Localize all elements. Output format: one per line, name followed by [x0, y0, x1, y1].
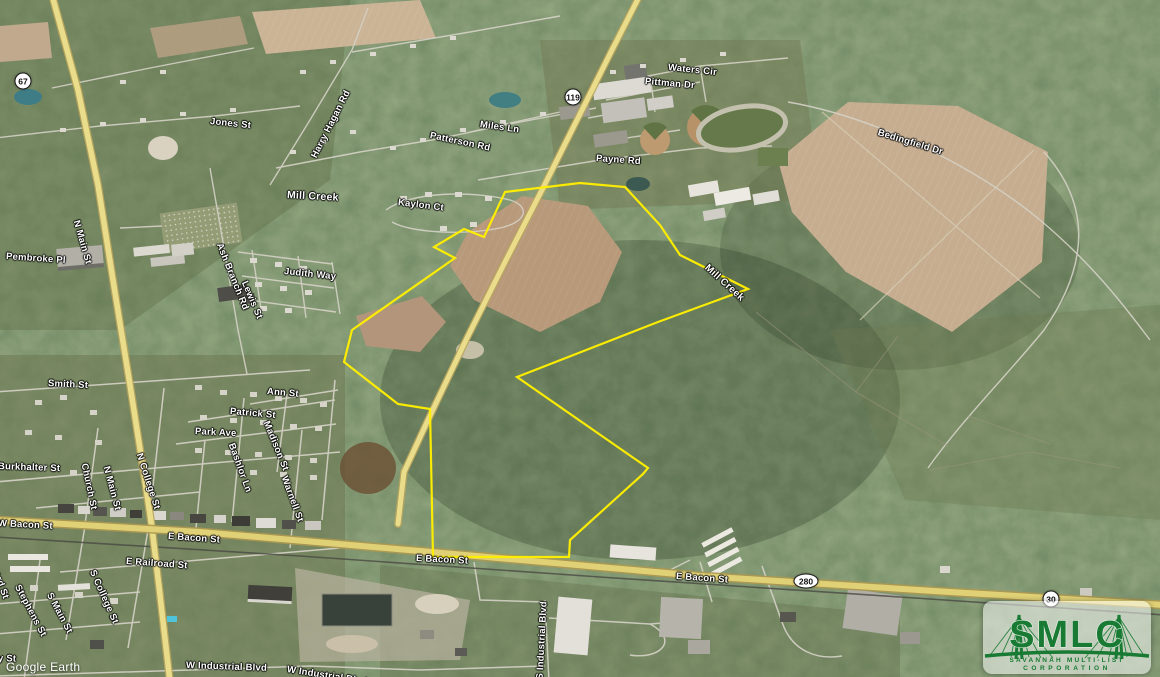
parcel-boundary — [344, 183, 748, 557]
map-viewport[interactable]: Jones StHarry Hagan RdPatterson RdMiles … — [0, 0, 1160, 677]
logo-line2: CORPORATION — [1023, 665, 1111, 672]
street-label: Burkhalter St — [0, 461, 60, 474]
logo-line1: SAVANNAH MULTI-LIST — [1009, 657, 1124, 664]
google-earth-watermark: Google Earth — [6, 660, 80, 674]
logo-acronym: SMLC — [1009, 614, 1125, 656]
bridge-icon: SMLC SAVANNAH MULTI-LIST CORPORATION — [983, 601, 1151, 674]
highway-shield-119: 119 — [565, 89, 582, 106]
highway-shield-280: 280 — [794, 574, 819, 589]
street-label: Park Ave — [195, 426, 237, 439]
street-label: Smith St — [48, 378, 89, 391]
highway-shield-67: 67 — [15, 73, 32, 90]
smlc-logo: SMLC SAVANNAH MULTI-LIST CORPORATION — [983, 601, 1151, 674]
